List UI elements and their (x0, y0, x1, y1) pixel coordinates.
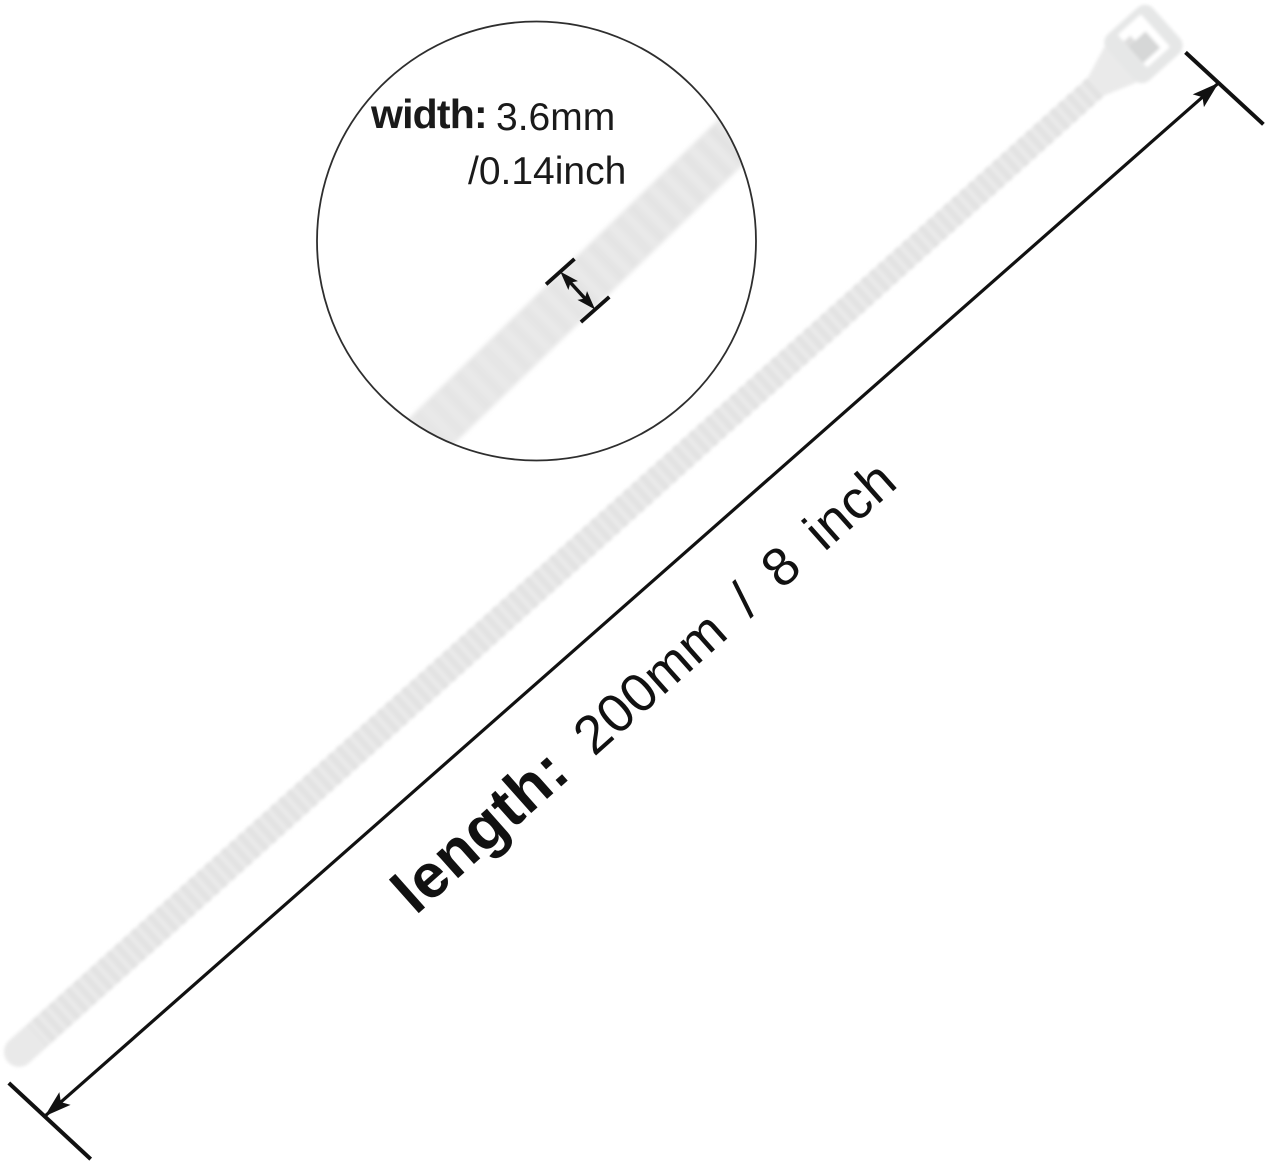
svg-text:3.6mm: 3.6mm (496, 96, 615, 139)
svg-text:width:: width: (370, 91, 487, 137)
svg-text:/0.14inch: /0.14inch (468, 150, 626, 193)
